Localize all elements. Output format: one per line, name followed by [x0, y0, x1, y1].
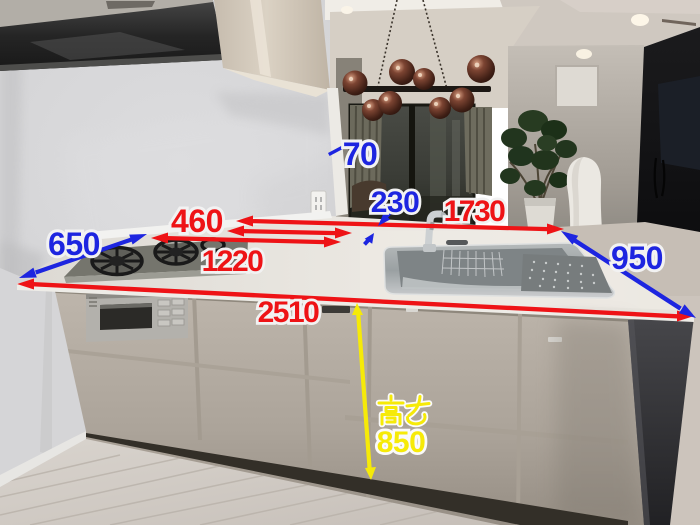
svg-text:2510: 2510	[258, 296, 320, 329]
svg-text:230: 230	[371, 186, 420, 219]
svg-text:650: 650	[48, 226, 100, 262]
svg-text:950: 950	[611, 240, 663, 276]
svg-text:1730: 1730	[444, 195, 506, 228]
svg-text:460: 460	[171, 203, 223, 239]
svg-text:70: 70	[343, 136, 378, 172]
svg-text:1220: 1220	[202, 245, 264, 278]
svg-text:850: 850	[377, 426, 426, 459]
